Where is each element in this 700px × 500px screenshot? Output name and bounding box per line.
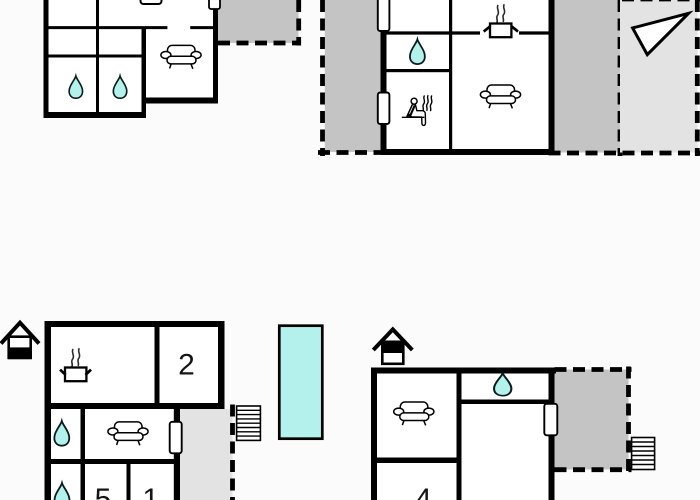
svg-text:2: 2 [178, 349, 195, 382]
svg-text:4: 4 [415, 483, 432, 500]
svg-text:5: 5 [95, 483, 112, 500]
svg-text:1: 1 [142, 483, 159, 500]
